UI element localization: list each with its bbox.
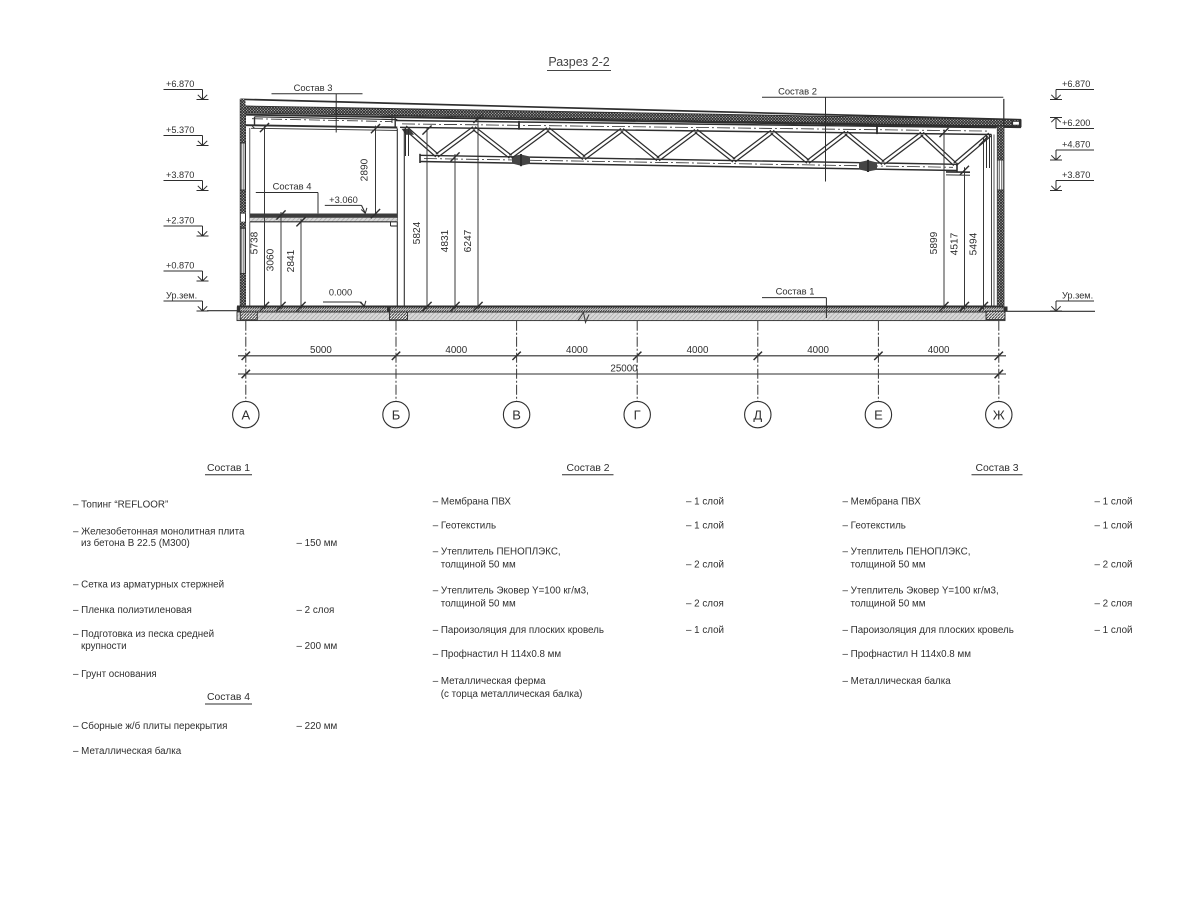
svg-text:6247: 6247 <box>463 229 474 252</box>
svg-text:– Утеплитель Эковер Y=100 кг/м: – Утеплитель Эковер Y=100 кг/м3, <box>433 586 589 597</box>
svg-text:– Утеплитель ПЕНОПЛЭКС,: – Утеплитель ПЕНОПЛЭКС, <box>433 547 561 558</box>
svg-text:– 1 слой: – 1 слой <box>1095 497 1133 508</box>
svg-text:– Профнастил Н 114х0.8 мм: – Профнастил Н 114х0.8 мм <box>843 649 972 660</box>
svg-text:4517: 4517 <box>950 232 961 255</box>
svg-text:+6.870: +6.870 <box>1062 79 1090 89</box>
svg-text:– 2 слоя: – 2 слоя <box>686 599 724 610</box>
svg-text:– Пароизоляция для плоских кро: – Пароизоляция для плоских кровель <box>433 625 604 636</box>
svg-text:(с торца металлическая балка): (с торца металлическая балка) <box>441 689 583 700</box>
svg-text:– Утеплитель ПЕНОПЛЭКС,: – Утеплитель ПЕНОПЛЭКС, <box>843 547 971 558</box>
svg-text:Ур.зем.: Ур.зем. <box>1062 291 1093 301</box>
svg-text:– 2 слой: – 2 слой <box>1095 560 1133 571</box>
svg-text:Е: Е <box>874 407 883 422</box>
svg-text:– Сетка из арматурных стержней: – Сетка из арматурных стержней <box>73 580 224 591</box>
svg-text:толщиной 50 мм: толщиной 50 мм <box>441 560 516 571</box>
svg-text:5738: 5738 <box>250 231 261 254</box>
svg-text:Состав 2: Состав 2 <box>778 85 817 96</box>
svg-text:+5.370: +5.370 <box>166 125 194 135</box>
svg-text:крупности: крупности <box>81 641 127 652</box>
svg-text:– Железобетонная монолитная п: – Железобетонная монолитная плита <box>73 527 245 538</box>
svg-text:– Пленка полиэтиленовая: – Пленка полиэтиленовая <box>73 605 192 616</box>
svg-text:толщиной 50 мм: толщиной 50 мм <box>851 599 926 610</box>
svg-text:5494: 5494 <box>969 232 980 255</box>
svg-text:+6.200: +6.200 <box>1062 118 1090 128</box>
svg-text:Д: Д <box>753 407 762 422</box>
svg-text:– Геотекстиль: – Геотекстиль <box>843 521 906 532</box>
svg-text:– 1 слой: – 1 слой <box>686 497 724 508</box>
svg-text:– 1 слой: – 1 слой <box>686 521 724 532</box>
svg-text:Б: Б <box>392 407 401 422</box>
svg-text:5000: 5000 <box>310 345 332 356</box>
svg-text:– Грунт основания: – Грунт основания <box>73 669 157 680</box>
svg-text:– 1 слой: – 1 слой <box>686 625 724 636</box>
svg-text:4000: 4000 <box>566 345 588 356</box>
svg-text:– Металлическая ферма: – Металлическая ферма <box>433 676 546 687</box>
svg-text:– 1 слой: – 1 слой <box>1095 521 1133 532</box>
svg-text:+0.870: +0.870 <box>166 261 194 271</box>
svg-text:– Утеплитель Эковер Y=100 кг/м: – Утеплитель Эковер Y=100 кг/м3, <box>843 586 999 597</box>
svg-text:Состав 2: Состав 2 <box>566 463 609 474</box>
svg-text:Состав 4: Состав 4 <box>207 692 250 703</box>
svg-text:– 220 мм: – 220 мм <box>297 721 338 732</box>
svg-text:– 2 слоя: – 2 слоя <box>1095 599 1133 610</box>
svg-text:В: В <box>512 407 521 422</box>
svg-text:толщиной 50 мм: толщиной 50 мм <box>441 599 516 610</box>
svg-text:Ж: Ж <box>993 407 1005 422</box>
svg-text:Состав 3: Состав 3 <box>294 82 333 93</box>
svg-text:+3.870: +3.870 <box>1062 170 1090 180</box>
svg-text:– Сборные ж/б плиты перекрытия: – Сборные ж/б плиты перекрытия <box>73 721 227 732</box>
svg-text:4000: 4000 <box>445 345 467 356</box>
svg-text:– 2 слоя: – 2 слоя <box>297 605 335 616</box>
svg-text:А: А <box>241 407 250 422</box>
svg-text:– Мембрана ПВХ: – Мембрана ПВХ <box>843 497 922 508</box>
svg-text:+4.870: +4.870 <box>1062 140 1090 150</box>
svg-text:+3.870: +3.870 <box>166 170 194 180</box>
svg-text:0.000: 0.000 <box>329 288 352 298</box>
svg-text:– Металлическая балка: – Металлическая балка <box>843 676 952 687</box>
svg-text:толщиной 50 мм: толщиной 50 мм <box>851 560 926 571</box>
svg-text:3060: 3060 <box>266 248 277 271</box>
svg-text:Состав 1: Состав 1 <box>207 463 250 474</box>
svg-text:– Металлическая балка: – Металлическая балка <box>73 746 182 757</box>
svg-text:– Профнастил Н 114х0.8 мм: – Профнастил Н 114х0.8 мм <box>433 649 562 660</box>
svg-text:+3.060: +3.060 <box>329 195 358 205</box>
svg-text:Ур.зем.: Ур.зем. <box>166 291 197 301</box>
svg-text:+6.870: +6.870 <box>166 79 194 89</box>
svg-text:2890: 2890 <box>360 158 371 181</box>
svg-text:Состав 3: Состав 3 <box>975 463 1018 474</box>
svg-text:5824: 5824 <box>412 221 423 244</box>
svg-text:– 2 слой: – 2 слой <box>686 560 724 571</box>
svg-text:25000: 25000 <box>610 363 638 374</box>
svg-text:+2.370: +2.370 <box>166 216 194 226</box>
svg-text:4831: 4831 <box>440 229 451 252</box>
svg-text:– 1 слой: – 1 слой <box>1095 625 1133 636</box>
svg-text:4000: 4000 <box>928 345 950 356</box>
svg-text:– Мембрана ПВХ: – Мембрана ПВХ <box>433 497 512 508</box>
svg-text:Г: Г <box>634 407 641 422</box>
svg-text:– 200 мм: – 200 мм <box>297 641 338 652</box>
svg-text:из бетона В 22.5 (М300): из бетона В 22.5 (М300) <box>81 538 190 549</box>
svg-text:– Подготовка из песка средней: – Подготовка из песка средней <box>73 629 214 640</box>
svg-text:– Геотекстиль: – Геотекстиль <box>433 521 496 532</box>
svg-text:Состав 4: Состав 4 <box>273 181 312 192</box>
svg-text:– Топинг “REFLOOR”: – Топинг “REFLOOR” <box>73 500 168 511</box>
svg-text:5899: 5899 <box>929 231 940 254</box>
svg-text:2841: 2841 <box>286 249 297 272</box>
svg-text:– 150 мм: – 150 мм <box>297 538 338 549</box>
svg-text:Разрез 2-2: Разрез 2-2 <box>548 55 609 69</box>
svg-text:4000: 4000 <box>807 345 829 356</box>
svg-text:– Пароизоляция для плоских кро: – Пароизоляция для плоских кровель <box>843 625 1014 636</box>
svg-text:4000: 4000 <box>687 345 709 356</box>
svg-text:Состав 1: Состав 1 <box>776 286 815 297</box>
